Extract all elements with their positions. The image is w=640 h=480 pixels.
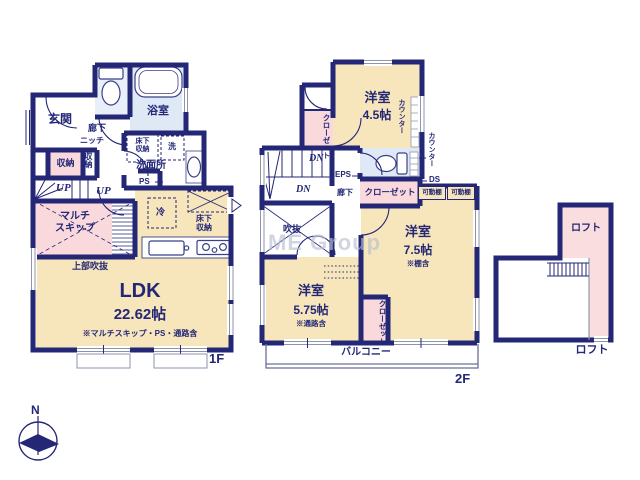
label-hallway-1f: 廊下	[88, 123, 116, 134]
label-compass-north: N	[31, 403, 40, 417]
label-ldk-name: LDK	[100, 280, 180, 304]
label-ds: DS	[429, 175, 440, 184]
bathtub-inner	[139, 71, 178, 94]
label-bathroom: 浴室	[134, 105, 182, 118]
label-storage-b: 収納	[84, 152, 92, 178]
toilet-2f-tank	[397, 153, 407, 174]
loft-strip-side-fill	[589, 258, 611, 340]
label-counter-a: カウンター	[398, 99, 405, 147]
label-eps: EPS	[335, 170, 351, 179]
label-room575-name: 洋室	[287, 283, 335, 298]
label-room45-size: 4.5帖	[352, 108, 402, 122]
label-ldk-note: ※マルチスキップ・PS・通路含	[72, 329, 208, 338]
porch-steps	[26, 110, 30, 145]
label-storage-a: 収納	[50, 158, 81, 169]
label-room575-note: ※通路含	[285, 320, 337, 329]
label-ldk-size: 22.62帖	[96, 306, 184, 324]
label-floor-1f: 1F	[209, 351, 224, 366]
vanity-basin	[188, 157, 201, 177]
door-marker-triangle	[232, 199, 241, 212]
toilet-1f-tank	[99, 68, 123, 79]
label-multi-skip: マルチ スキップ	[42, 211, 108, 235]
room575-fill	[262, 257, 361, 343]
counter-45-strip	[411, 97, 419, 147]
room45-fill	[333, 62, 422, 150]
label-balcony: バルコニー	[338, 347, 394, 359]
label-washer: 洗	[164, 142, 180, 151]
label-loft-b: ロフト	[570, 344, 614, 357]
label-room75-note: ※棚含	[397, 260, 439, 269]
label-room75-size: 7.5帖	[394, 243, 442, 257]
burner-2	[220, 244, 227, 251]
window-box-left	[77, 354, 130, 368]
label-fridge: 冷	[156, 207, 165, 218]
label-ps: PS	[139, 177, 150, 186]
label-underfloor-kitchen: 床下 収納	[190, 214, 218, 233]
label-room575-size: 5.75帖	[282, 303, 340, 317]
label-up-a: UP	[56, 182, 71, 195]
kitchen-faucet	[184, 246, 188, 250]
burner-1	[203, 244, 210, 251]
label-up-b: UP	[96, 185, 111, 198]
label-shelf-a: 可動棚	[418, 186, 446, 200]
floor-plan: 玄関 廊下 ニッチ 収納 収納 浴室 床下 収納 洗 洗面所 PS 冷 床下 収…	[0, 0, 640, 480]
label-entrance: 玄関	[48, 112, 88, 126]
compass-icon	[19, 416, 59, 460]
label-hallway-2f: 廊下	[337, 188, 353, 197]
label-dn-b: DN	[296, 184, 310, 196]
window-box-right	[154, 354, 207, 368]
counter-strips	[410, 97, 419, 176]
toilet-1f-bowl	[102, 81, 120, 105]
label-room45-name: 洋室	[355, 90, 400, 105]
label-niche: ニッチ	[80, 136, 110, 145]
label-upper-void: 上部吹抜	[66, 261, 114, 272]
label-closet-c: クローゼット	[364, 300, 386, 328]
kitchen-sink	[149, 241, 184, 255]
label-dn-a: DN	[309, 153, 323, 165]
label-underfloor-wash: 床下 収納	[128, 138, 157, 155]
label-closet-b: クローゼット	[362, 187, 418, 197]
watermark: ME Group	[268, 230, 381, 256]
loft-room-fill	[496, 258, 589, 340]
label-shelf-b: 可動棚	[447, 186, 475, 200]
label-closet-a: クローゼット	[306, 114, 330, 142]
label-floor-2f: 2F	[455, 371, 470, 386]
label-loft-a: ロフト	[568, 223, 604, 235]
label-washroom: 洗面所	[126, 160, 176, 172]
label-counter-b: カウンター	[428, 132, 435, 180]
label-room75-name: 洋室	[395, 224, 441, 239]
burner-3	[212, 248, 217, 253]
